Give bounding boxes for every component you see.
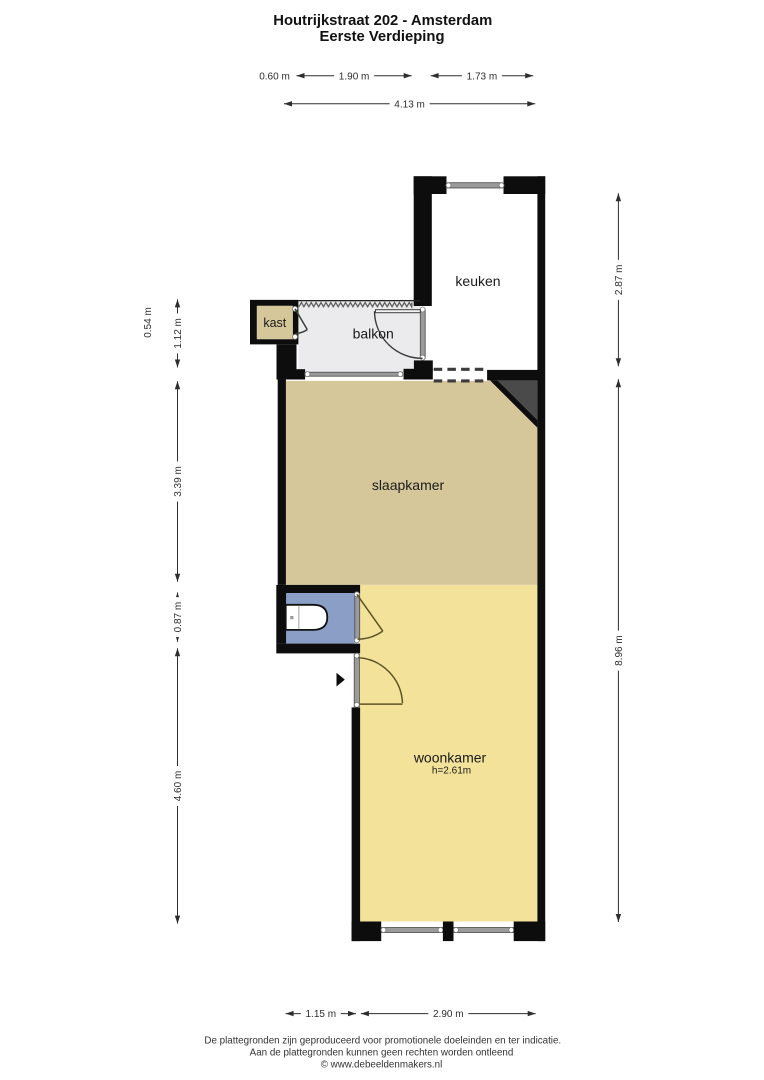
svg-text:© www.debeeldenmakers.nl: © www.debeeldenmakers.nl (321, 1059, 443, 1070)
svg-text:4.60 m: 4.60 m (173, 771, 184, 802)
svg-text:Houtrijkstraat 202 - Amsterdam: Houtrijkstraat 202 - Amsterdam (273, 13, 492, 29)
svg-text:1.90 m: 1.90 m (339, 71, 370, 82)
svg-text:3.39 m: 3.39 m (173, 466, 184, 497)
svg-text:0.54 m: 0.54 m (143, 307, 154, 338)
svg-text:h=2.61m: h=2.61m (432, 766, 471, 777)
svg-text:keuken: keuken (455, 273, 500, 289)
svg-text:Eerste Verdieping: Eerste Verdieping (319, 29, 444, 45)
svg-text:1.15 m: 1.15 m (306, 1009, 337, 1020)
svg-text:2.90 m: 2.90 m (433, 1009, 464, 1020)
svg-text:1.12 m: 1.12 m (173, 318, 184, 349)
svg-text:Aan de plattegronden kunnen ge: Aan de plattegronden kunnen geen rechten… (250, 1047, 514, 1058)
svg-text:0.87 m: 0.87 m (173, 602, 184, 633)
svg-text:balkon: balkon (353, 326, 394, 342)
svg-text:De plattegronden zijn geproduc: De plattegronden zijn geproduceerd voor … (204, 1035, 561, 1046)
svg-text:woonkamer: woonkamer (413, 749, 487, 765)
svg-text:4.13 m: 4.13 m (394, 99, 425, 110)
svg-text:1.73 m: 1.73 m (467, 71, 498, 82)
svg-text:kast: kast (263, 316, 286, 330)
svg-text:0.60 m: 0.60 m (259, 71, 290, 82)
svg-text:slaapkamer: slaapkamer (372, 477, 445, 493)
svg-text:2.87 m: 2.87 m (614, 265, 625, 296)
svg-text:8.96 m: 8.96 m (614, 635, 625, 666)
